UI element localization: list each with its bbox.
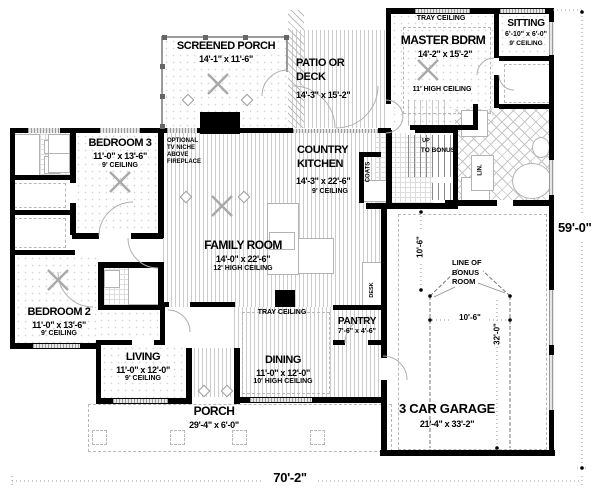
coats-closet-label: COATS (366, 162, 373, 183)
desk-label: DESK (369, 282, 375, 297)
living-dims: 11'-0" x 12'-0" (116, 365, 170, 375)
screened-porch-label: SCREENED PORCH (177, 40, 275, 53)
porch-label: PORCH (194, 405, 235, 419)
light-fixture-icon (180, 191, 191, 202)
bedroom2-dims: 11'-0" x 13'-6" (32, 320, 86, 330)
dining-label: DINING (265, 354, 301, 367)
pantry-label: PANTRY (338, 316, 376, 328)
ceiling-fan-icon (418, 60, 438, 80)
family-room-label: FAMILY ROOM (204, 239, 282, 253)
dining-dims: 11'-0" x 12'-0" (256, 368, 310, 378)
patio-dims: 14'-3" x 15'-2" (296, 90, 350, 100)
bedroom3-ceiling-note: 9' CEILING (102, 162, 138, 170)
ceiling-fan-icon (212, 196, 232, 216)
master-bdrm-label: MASTER BDRM (401, 34, 486, 48)
dining-ceiling-note: 10' HIGH CEILING (253, 378, 312, 386)
family-room-dims: 14'-0" x 22'-6" (216, 254, 270, 264)
bedroom2-ceiling-note: 9' CEILING (41, 330, 77, 338)
light-fixture-icon (241, 94, 252, 105)
light-fixture-icon (238, 191, 249, 202)
patio-label: PATIO OR DECK (296, 56, 344, 84)
floor-plan: SCREENED PORCH 14'-1" x 11'-6" PATIO OR … (0, 0, 600, 498)
ceiling-fan-icon (208, 74, 228, 94)
light-fixture-icon (182, 94, 193, 105)
pantry-dims: 7'-6" x 4'-6" (338, 328, 376, 336)
bedroom3-dims: 11'-0" x 13'-6" (93, 151, 147, 161)
door-arcs (58, 58, 514, 380)
porch-dims: 29'-4" x 6'-0" (189, 420, 239, 430)
living-label: LIVING (126, 351, 160, 364)
country-kitchen-label: COUNTRY KITCHEN (297, 143, 348, 171)
country-kitchen-ceiling-note: 9' CEILING (312, 188, 348, 196)
sitting-dims: 6'-10" x 6'-0" (505, 31, 547, 39)
master-tray-ceiling-note: TRAY CEILING (417, 15, 466, 23)
master-bdrm-dims: 14'-2" x 15'-2" (418, 49, 472, 59)
sitting-label: SITTING (507, 18, 544, 30)
family-room-ceiling-note: 12' HIGH CEILING (213, 265, 272, 273)
garage-depth-dimension: 32'-0" (492, 321, 501, 347)
stairs-to-bonus-note: TO BONUS (421, 147, 455, 154)
line-of-bonus-room-note: LINE OF BONUS ROOM (452, 258, 482, 287)
garage-dims: 21'-4" x 33'-2" (420, 419, 474, 429)
sitting-ceiling-note: 9' CEILING (509, 40, 542, 47)
light-fixture-icon (198, 385, 209, 396)
linen-closet-label: LIN. (478, 164, 485, 175)
country-kitchen-dims: 14'-3" x 22'-6" (296, 176, 350, 186)
bonus-width-dimension: 10'-6" (457, 313, 483, 322)
garage-label: 3 CAR GARAGE (399, 402, 495, 417)
bedroom3-label: BEDROOM 3 (88, 137, 151, 150)
master-ceiling-note: 11' HIGH CEILING (413, 86, 472, 94)
stairs-up-note: UP (422, 138, 430, 144)
overall-width-dimension: 70'-2" (271, 471, 308, 486)
optional-tv-niche-note: OPTIONAL TV NICHE ABOVE FIREPLACE (167, 138, 201, 166)
bonus-offset-dimension: 10'-6" (415, 234, 424, 260)
ceiling-fan-icon (110, 172, 130, 192)
screened-porch-dims: 14'-1" x 11'-6" (199, 54, 253, 64)
bedroom2-label: BEDROOM 2 (27, 306, 90, 319)
light-fixture-icon (221, 385, 232, 396)
living-ceiling-note: 9' CEILING (125, 375, 161, 383)
dining-tray-ceiling-note: TRAY CEILING (258, 309, 307, 317)
overall-depth-dimension: 59'-0" (556, 221, 593, 236)
